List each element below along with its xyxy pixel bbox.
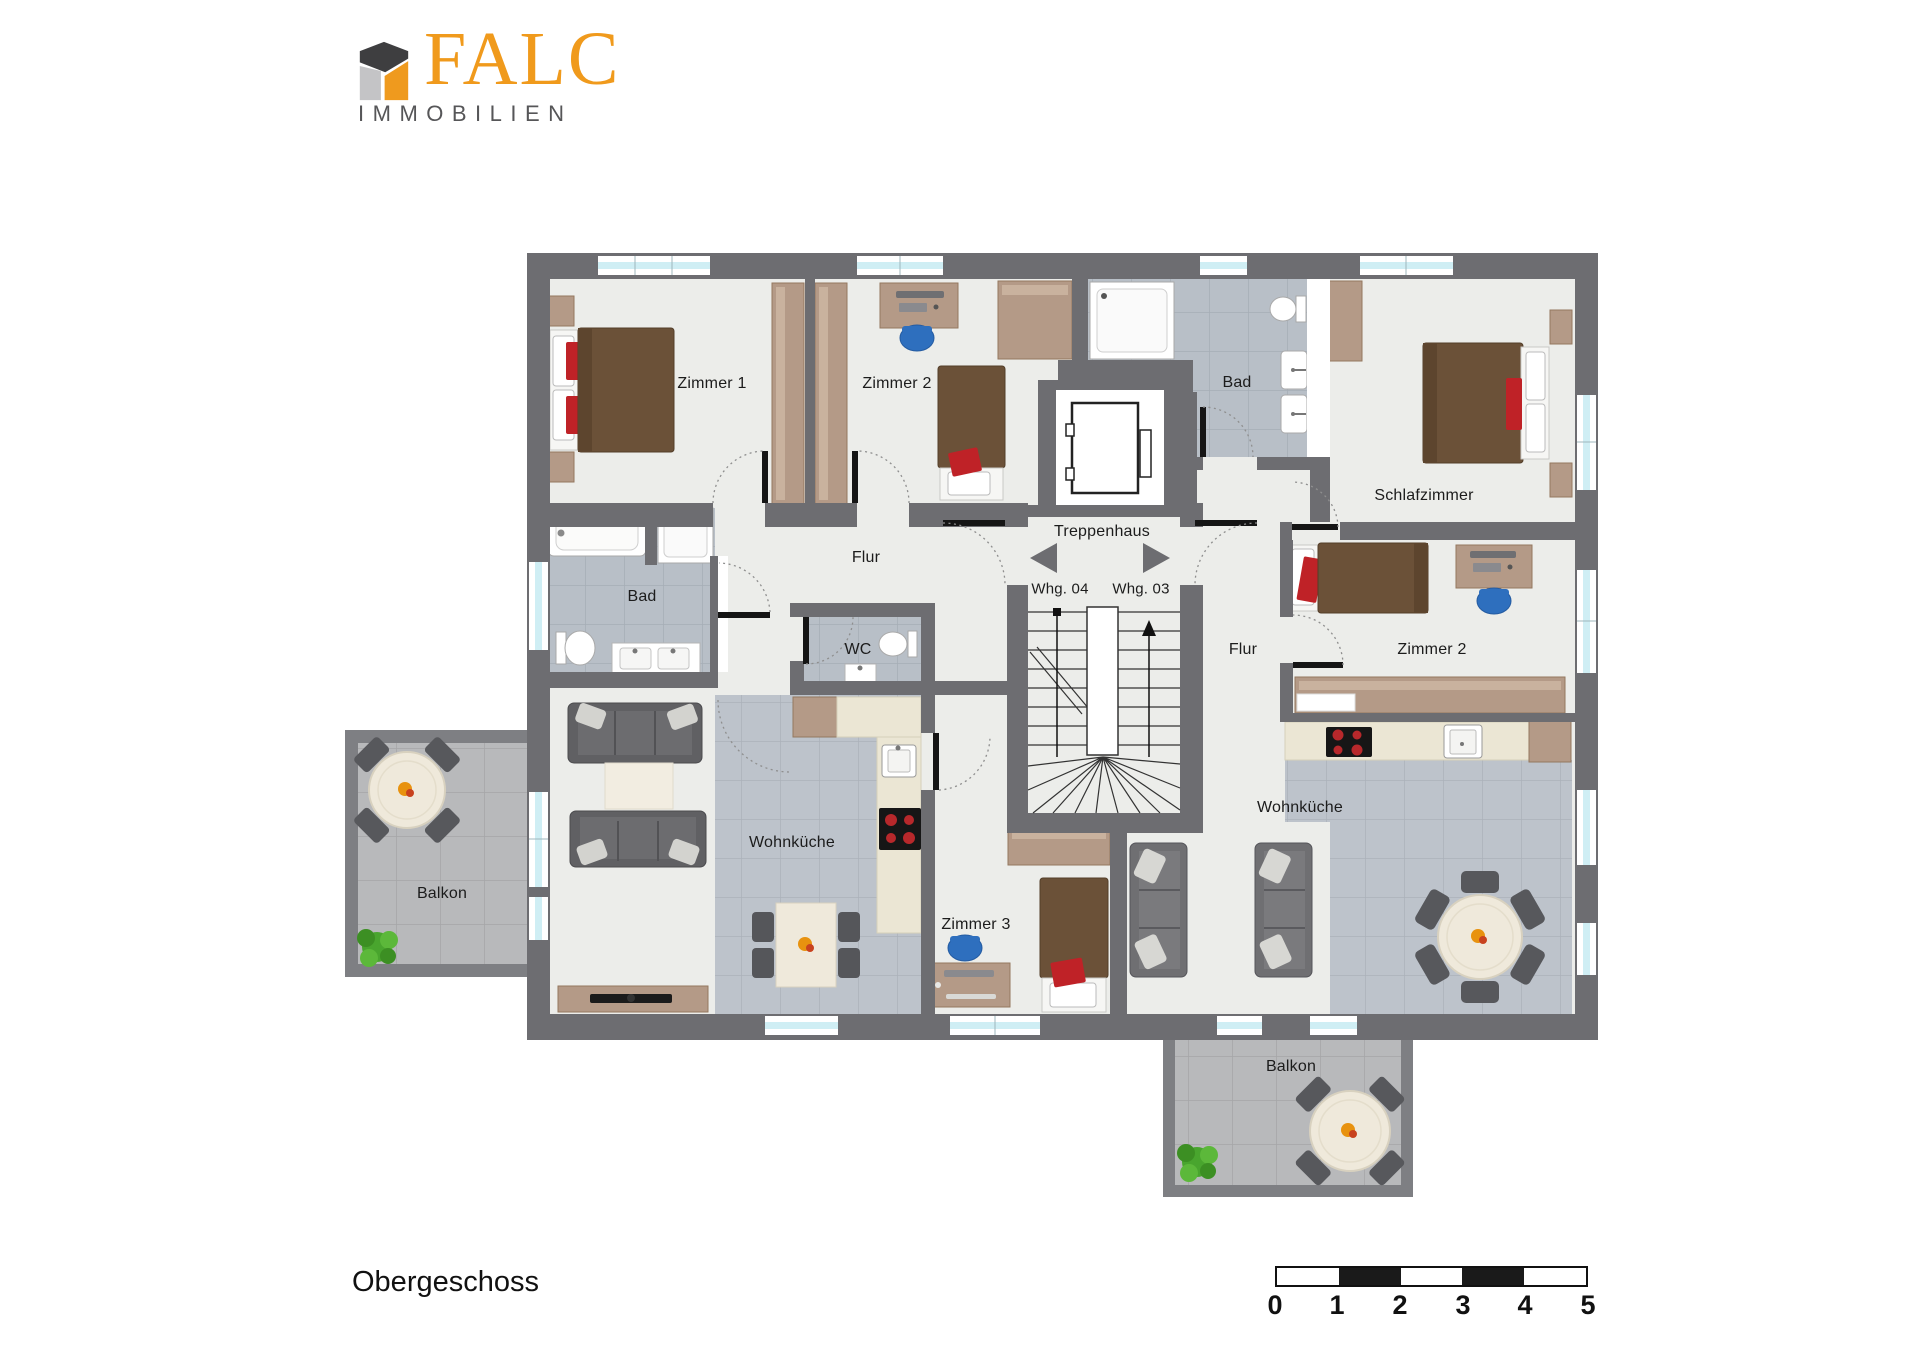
scale-tick: 0	[1267, 1290, 1282, 1321]
floor-title: Obergeschoss	[352, 1266, 539, 1299]
plant-icon	[1177, 1144, 1218, 1182]
single-bed	[1318, 543, 1428, 613]
kitchen-counter	[837, 697, 921, 737]
door-leaf	[852, 451, 858, 503]
floorplan-drawing	[0, 0, 1920, 1357]
scale-tick: 5	[1580, 1290, 1595, 1321]
room-label-bad-right: Bad	[1222, 374, 1251, 392]
double-bed	[578, 328, 674, 452]
toilet-icon	[556, 631, 595, 665]
room-label-flur-left: Flur	[852, 549, 880, 567]
room-label-zimmer3: Zimmer 3	[941, 916, 1010, 934]
door-leaf	[803, 617, 809, 664]
room-label-bad-left: Bad	[627, 588, 656, 606]
floorplan-page: Zimmer 1 Zimmer 2 Bad Schlafzimmer Trepp…	[0, 0, 1920, 1357]
plant-icon	[357, 929, 398, 967]
room-label-wc: WC	[844, 641, 871, 659]
scale-bar-segments	[1275, 1266, 1588, 1287]
room-label-balkon-left: Balkon	[417, 885, 467, 903]
door-leaf	[1293, 662, 1343, 668]
room-label-zimmer2-left: Zimmer 2	[862, 375, 931, 393]
room-label-zimmer2-right: Zimmer 2	[1397, 641, 1466, 659]
scale-bar: 0 1 2 3 4 5	[1275, 1266, 1588, 1287]
room-label-balkon-bottom: Balkon	[1266, 1058, 1316, 1076]
falc-logo: FALC IMMOBILIEN	[356, 30, 626, 130]
door-leaf	[762, 451, 768, 503]
kitchen-cabinet	[793, 697, 837, 737]
door-leaf	[933, 733, 939, 790]
room-label-wohnkueche-left: Wohnküche	[749, 834, 835, 852]
label-treppenhaus: Treppenhaus	[1054, 523, 1150, 541]
cooktop	[879, 808, 921, 850]
label-whg03: Whg. 03	[1112, 581, 1169, 598]
kitchen-cabinet	[1529, 718, 1571, 762]
rug	[605, 763, 673, 809]
scale-tick: 4	[1517, 1290, 1532, 1321]
room-label-wohnkueche-right: Wohnküche	[1257, 799, 1343, 817]
door-leaf	[1292, 524, 1338, 530]
door-leaf	[1195, 520, 1257, 526]
balcony-bottom-table	[1294, 1075, 1406, 1187]
cooktop	[1326, 727, 1372, 757]
kitchen-counter	[1285, 722, 1531, 760]
door-leaf	[943, 520, 1005, 526]
logo-subtitle-text: IMMOBILIEN	[358, 101, 573, 127]
falc-logo-icon	[356, 40, 412, 102]
balcony-left-table	[353, 736, 462, 845]
wardrobe	[1326, 281, 1362, 361]
scale-tick: 3	[1455, 1290, 1470, 1321]
scale-tick: 2	[1392, 1290, 1407, 1321]
scale-tick: 1	[1329, 1290, 1344, 1321]
toilet-icon	[1270, 296, 1306, 322]
door-leaf	[1200, 407, 1206, 457]
room-label-flur-right: Flur	[1229, 641, 1257, 659]
logo-brand-text: FALC	[424, 16, 621, 103]
wall-pocket	[1307, 279, 1330, 457]
elevator	[1056, 390, 1164, 505]
room-label-zimmer1-left: Zimmer 1	[677, 375, 746, 393]
balcony-left	[345, 730, 530, 977]
label-whg04: Whg. 04	[1031, 581, 1088, 598]
room-label-schlafzimmer: Schlafzimmer	[1374, 487, 1473, 505]
toilet-icon	[879, 631, 917, 657]
door-leaf	[718, 612, 770, 618]
